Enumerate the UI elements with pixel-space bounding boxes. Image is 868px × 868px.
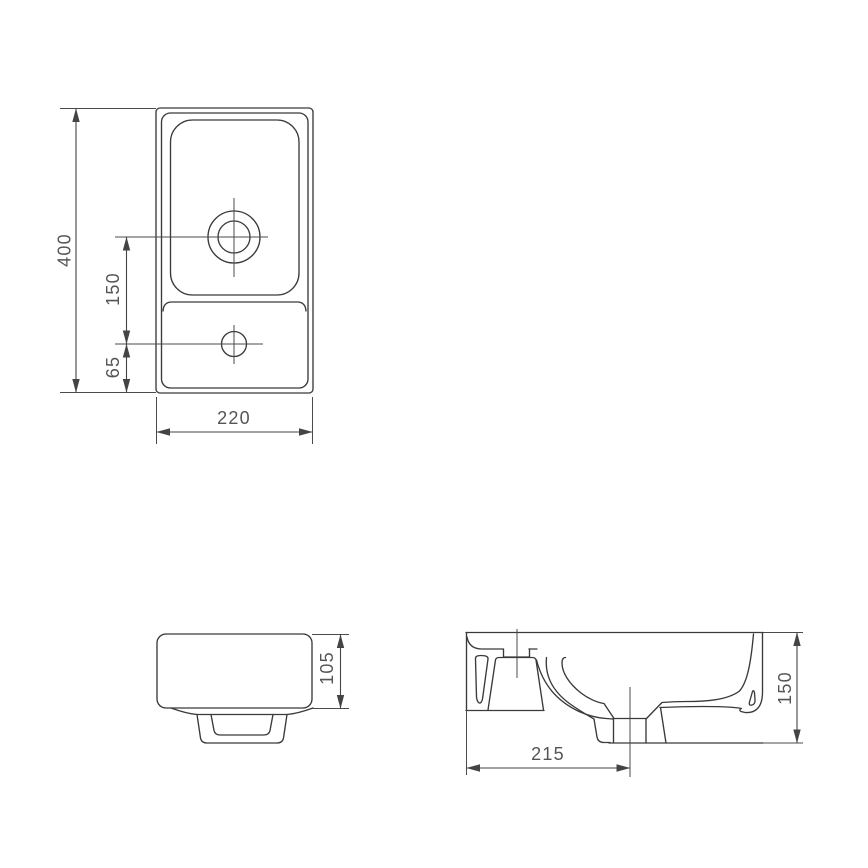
dim-width-label: 220 bbox=[217, 408, 251, 428]
section-left-wall-cavity bbox=[475, 656, 488, 704]
section-bowl-inner-surface bbox=[647, 634, 754, 719]
dim-tap-to-front-label: 65 bbox=[103, 356, 123, 378]
side-drain-boss-inner bbox=[211, 715, 273, 736]
side-drain-boss-outline bbox=[171, 708, 313, 743]
section-view: 215 150 bbox=[466, 629, 803, 777]
section-bowl-underside bbox=[660, 707, 742, 709]
drawing-sheet: 400 150 65 220 105 bbox=[0, 0, 868, 868]
section-under-deck-line bbox=[467, 637, 537, 649]
plan-deck-separator bbox=[163, 302, 306, 311]
section-right-foot-cavity bbox=[749, 691, 755, 706]
plan-view: 400 150 65 220 bbox=[54, 108, 313, 444]
section-bowl-wall-curve-1 bbox=[537, 660, 614, 719]
plan-rim-line bbox=[162, 113, 309, 388]
section-deck-support bbox=[488, 658, 544, 711]
dim-drain-to-tap-label: 150 bbox=[103, 272, 123, 306]
section-bowl-wall-curve-2 bbox=[546, 658, 610, 743]
section-right-wall-outer bbox=[740, 633, 763, 713]
dim-side-height-label: 105 bbox=[317, 651, 337, 685]
section-drain-boss-right bbox=[661, 708, 667, 744]
dim-section-height-label: 150 bbox=[775, 671, 795, 705]
section-overflow-channel bbox=[562, 658, 614, 719]
side-body-outline bbox=[157, 634, 312, 708]
plan-basin-inner-edge bbox=[171, 120, 300, 295]
washbasin-technical-drawing: 400 150 65 220 105 bbox=[0, 0, 868, 868]
side-view: 105 bbox=[157, 634, 349, 743]
dim-depth-label: 400 bbox=[54, 233, 74, 267]
dim-drain-offset-label: 215 bbox=[531, 744, 565, 764]
